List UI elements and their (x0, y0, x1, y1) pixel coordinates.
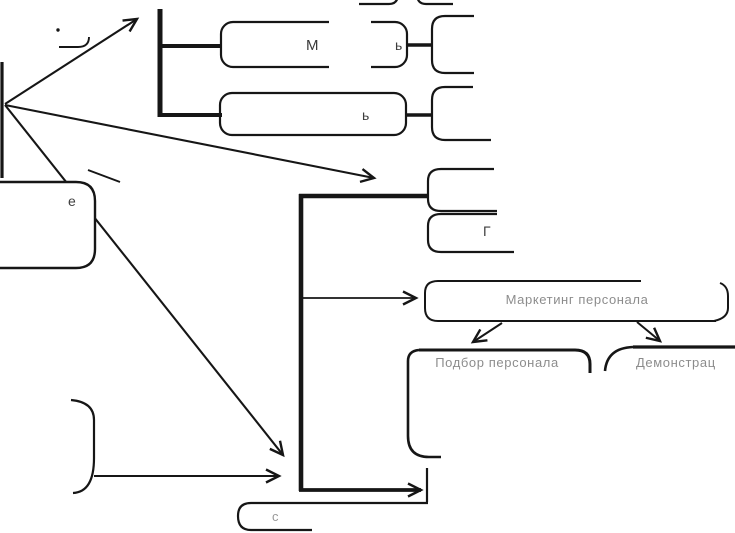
tree-node-2-text: ь (362, 107, 369, 123)
arrow-hub-to-top-tree (5, 19, 137, 104)
demonstration-node: Демонстрац (605, 347, 735, 371)
scanned-flowchart-page: М ь ь е Г Маркетинг персонала (0, 0, 735, 533)
marketing-node-text: Маркетинг персонала (506, 292, 649, 307)
tree-node-1-text-right: ь (395, 37, 402, 53)
tree-node-1-text-left: М (306, 37, 319, 54)
tree-node-2 (220, 93, 406, 135)
lower-left-node (71, 400, 279, 493)
demonstration-node-corner (605, 347, 633, 371)
bottom-node-text: с (272, 509, 279, 524)
bottom-node-border (238, 503, 428, 530)
artifact-curve (59, 37, 89, 47)
scan-fade-artifact (329, 14, 371, 74)
arrow-hub-to-spine-bottom (5, 105, 283, 455)
left-node: е (0, 182, 95, 268)
arrow-marketing-to-demonstration (637, 322, 660, 341)
label-artifact (56, 28, 89, 47)
spine-tree (299, 194, 427, 491)
selection-node-text: Подбор персонала (435, 355, 559, 370)
bottom-node: с (238, 503, 428, 530)
selection-node: Подбор персонала (408, 350, 590, 457)
stacked-node-2-text: Г (483, 223, 491, 239)
left-node-fill (0, 182, 95, 268)
marketing-node: Маркетинг персонала (425, 281, 728, 342)
cut-box-right-fragment (417, 0, 453, 4)
arrow-marketing-to-selection (473, 323, 502, 342)
left-node-text: е (68, 193, 76, 209)
lower-left-node-border (71, 400, 94, 493)
top-cut-boxes (359, 0, 453, 4)
stray-line-fragment (88, 170, 120, 182)
stacked-node-2 (428, 214, 514, 252)
tree-right-node-1 (432, 16, 474, 73)
tree-right-node-2 (432, 87, 491, 140)
demonstration-node-text: Демонстрац (636, 355, 716, 370)
stacked-node-1 (428, 169, 497, 211)
artifact-dot (56, 28, 59, 31)
marketing-node-border-right (714, 283, 728, 321)
flowchart-canvas: М ь ь е Г Маркетинг персонала (0, 0, 735, 533)
stacked-nodes: Г (428, 169, 514, 252)
cut-box-left-fragment (359, 0, 398, 4)
top-tree: М ь ь (158, 9, 491, 140)
